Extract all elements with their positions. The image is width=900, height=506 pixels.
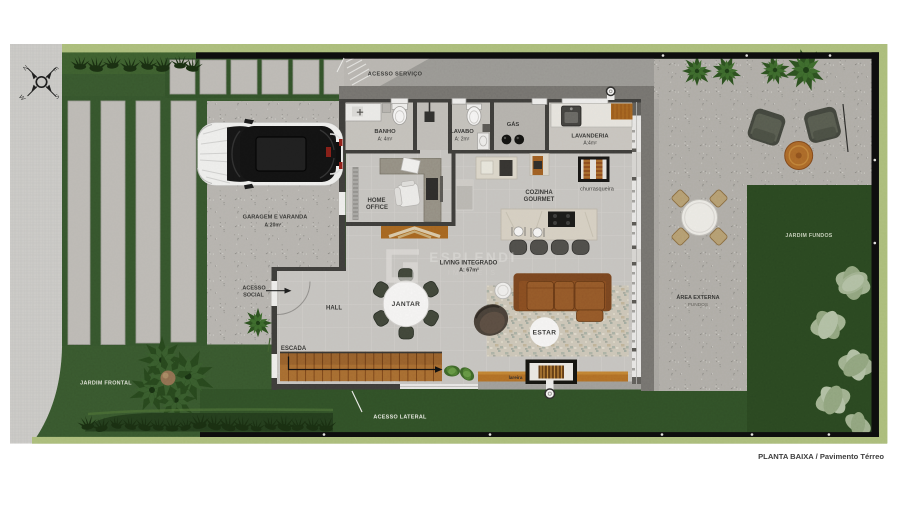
svg-text:PLANTA BAIXA / Pavimento Térre: PLANTA BAIXA / Pavimento Térreo <box>758 452 884 461</box>
